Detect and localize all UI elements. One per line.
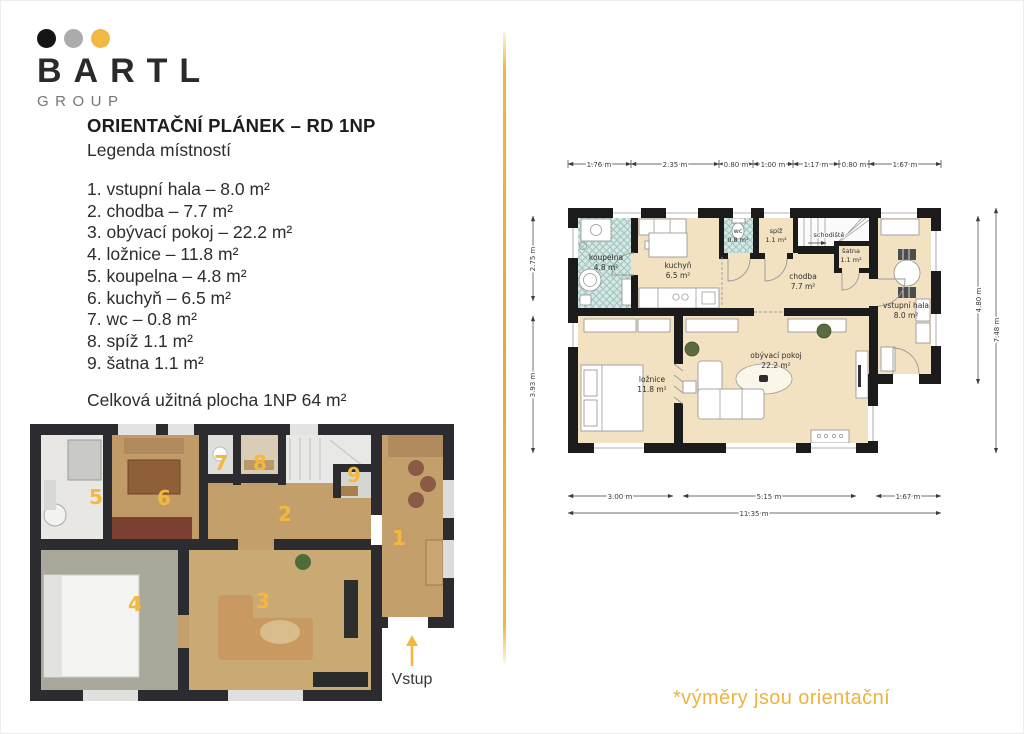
legend-item: 5. koupelna – 4.8 m² (87, 266, 292, 288)
label-obyvaci-area: 22.2 m² (761, 361, 790, 370)
logo-dot-gray-icon (64, 29, 83, 48)
label-obyvaci: obývací pokoj (750, 351, 802, 360)
brand-name: BARTL (37, 52, 212, 91)
label-kuchyn: kuchyň (665, 261, 692, 270)
legend-item: 8. spíž 1.1 m² (87, 331, 292, 353)
label-wc: wc (734, 227, 743, 235)
legend-item: 4. ložnice – 11.8 m² (87, 244, 292, 266)
dim-top-3: 0.80 m (724, 161, 749, 169)
logo-dots-icon (37, 29, 212, 48)
dim-top-5: 1.17 m (804, 161, 829, 169)
dim-left-2: 3.93 m (529, 373, 537, 398)
brand-subtitle: GROUP (37, 93, 212, 110)
legend-item: 1. vstupní hala – 8.0 m² (87, 179, 292, 201)
entry-label: Vstup (392, 671, 433, 688)
room-number-4: 4 (128, 592, 142, 616)
legend-item: 7. wc – 0.8 m² (87, 309, 292, 331)
legend-item: 9. šatna 1.1 m² (87, 353, 292, 375)
floor-plan-sheet: BARTL GROUP ORIENTAČNÍ PLÁNEK – RD 1NP L… (0, 0, 1024, 734)
floor-plan-2d: koupelna 4.8 m² kuchyň 6.5 m² wc 0.8 m² … (526, 149, 1016, 529)
room-legend: 1. vstupní hala – 8.0 m² 2. chodba – 7.7… (87, 179, 292, 374)
room-number-3: 3 (256, 589, 270, 613)
brand-logo: BARTL GROUP (37, 29, 212, 110)
label-satna-area: 1.1 m² (840, 256, 862, 264)
label-spiz: spíž (770, 227, 783, 235)
entry-arrow-icon (406, 635, 418, 666)
label-spiz-area: 1.1 m² (765, 236, 787, 244)
dim-right-2: 7.48 m (993, 318, 1001, 343)
total-area-text: Celková užitná plocha 1NP 64 m² (87, 390, 346, 411)
dim-right-1: 4.80 m (975, 288, 983, 313)
room-number-1: 1 (392, 526, 406, 550)
label-hala: vstupní hala (883, 301, 929, 310)
label-chodba: chodba (789, 272, 817, 281)
room-number-2: 2 (278, 502, 292, 526)
label-loznice-area: 11.8 m² (637, 385, 666, 394)
footnote-disclaimer: *výměry jsou orientační (673, 687, 890, 710)
dim-top-1: 1.76 m (587, 161, 612, 169)
dim-top-4: 1.00 m (761, 161, 786, 169)
room-number-5: 5 (89, 485, 103, 509)
label-satna: šatna (842, 247, 860, 255)
legend-item: 6. kuchyň – 6.5 m² (87, 288, 292, 310)
dim-left-1: 2.75 m (529, 247, 537, 272)
logo-dot-black-icon (37, 29, 56, 48)
legend-heading: Legenda místností (87, 140, 376, 161)
dim-bottom-3: 1.67 m (896, 493, 921, 501)
room-number-8: 8 (253, 451, 267, 475)
label-kuchyn-area: 6.5 m² (666, 271, 691, 280)
room-number-6: 6 (157, 486, 171, 510)
floor-plan-3d: 5 6 7 8 9 2 1 4 3 Vstup (28, 420, 458, 712)
label-loznice: ložnice (639, 375, 666, 384)
dim-top-2: 2.35 m (663, 161, 688, 169)
dim-bottom-1: 3.00 m (608, 493, 633, 501)
label-koupelna-area: 4.8 m² (594, 263, 619, 272)
label-wc-area: 0.8 m² (727, 236, 749, 244)
label-chodba-area: 7.7 m² (791, 282, 816, 291)
label-koupelna: koupelna (589, 253, 623, 262)
dim-top-6: 0.80 m (842, 161, 867, 169)
logo-dot-yellow-icon (91, 29, 110, 48)
dim-total: 11.35 m (739, 510, 768, 518)
label-hala-area: 8.0 m² (894, 311, 919, 320)
vertical-divider (503, 31, 506, 663)
room-number-9: 9 (347, 463, 361, 487)
legend-item: 2. chodba – 7.7 m² (87, 201, 292, 223)
room-number-7: 7 (214, 451, 228, 475)
dim-bottom-2: 5.15 m (757, 493, 782, 501)
page-title: ORIENTAČNÍ PLÁNEK – RD 1NP (87, 115, 376, 137)
dim-top-7: 1.67 m (893, 161, 918, 169)
label-schodiste: schodiště (814, 231, 845, 239)
legend-item: 3. obývací pokoj – 22.2 m² (87, 222, 292, 244)
